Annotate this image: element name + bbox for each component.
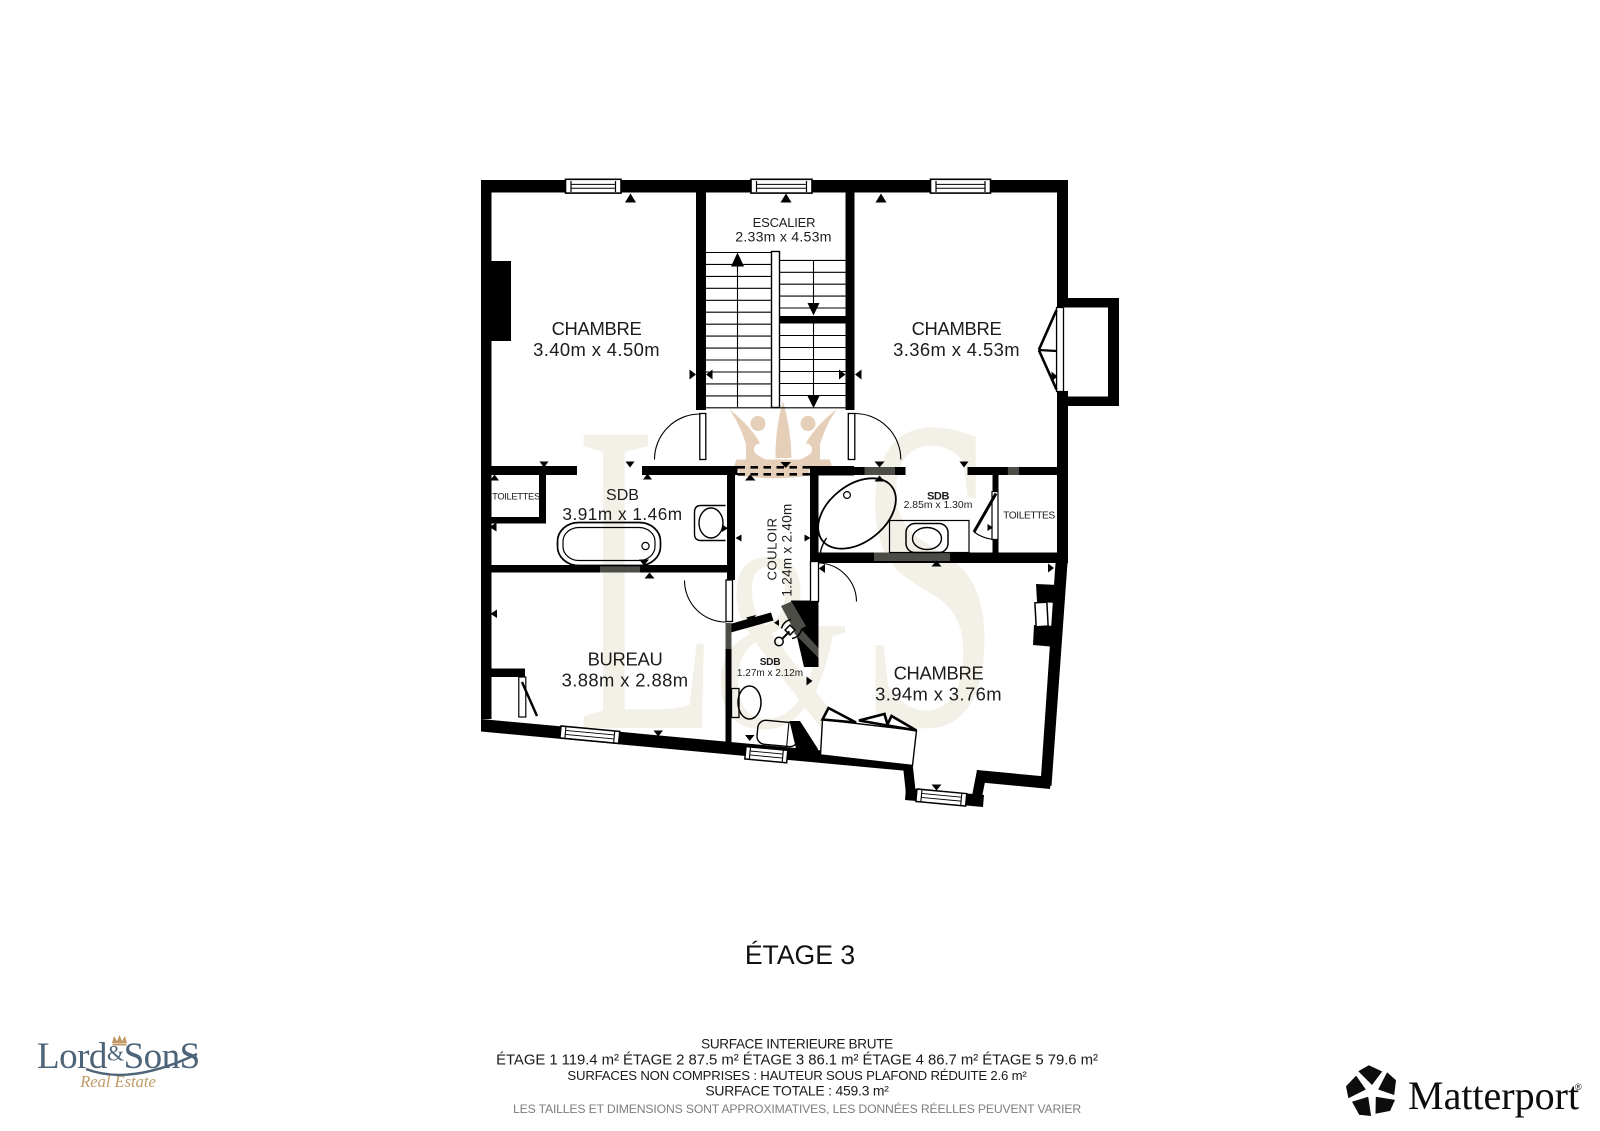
svg-text:2.85m x 1.30m: 2.85m x 1.30m [904,500,973,511]
svg-text:ÉTAGE 3: ÉTAGE 3 [745,940,855,970]
svg-text:Matterport: Matterport [1408,1073,1579,1118]
svg-text:SURFACE INTERIEURE BRUTE: SURFACE INTERIEURE BRUTE [701,1037,893,1052]
svg-text:CHAMBRE: CHAMBRE [912,318,1002,339]
svg-text:3.40m x 4.50m: 3.40m x 4.50m [533,339,660,360]
svg-text:ESCALIER: ESCALIER [753,215,816,230]
svg-text:2.33m x 4.53m: 2.33m x 4.53m [735,230,831,246]
svg-text:TOILETTES: TOILETTES [1003,511,1055,522]
svg-text:SURFACES NON COMPRISES : HAUT: SURFACES NON COMPRISES : HAUTEUR SOUS PL… [567,1068,1027,1083]
svg-text:SDB: SDB [606,487,639,504]
svg-text:LES TAILLES ET DIMENSIONS SONT: LES TAILLES ET DIMENSIONS SONT APPROXIMA… [513,1101,1081,1116]
svg-text:COULOIR: COULOIR [765,518,780,581]
svg-text:3.94m x 3.76m: 3.94m x 3.76m [875,684,1002,705]
svg-text:3.36m x 4.53m: 3.36m x 4.53m [893,339,1020,360]
svg-text:ÉTAGE 1 119.4 m² ÉTAGE 2 87: ÉTAGE 1 119.4 m² ÉTAGE 2 87.5 m² ÉTAGE 3… [496,1052,1098,1069]
svg-text:BUREAU: BUREAU [588,649,663,670]
svg-text:3.88m x 2.88m: 3.88m x 2.88m [562,670,689,691]
svg-text:®: ® [1575,1082,1582,1092]
svg-text:1.24m x 2.40m: 1.24m x 2.40m [780,503,795,596]
svg-text:3.91m x 1.46m: 3.91m x 1.46m [562,504,682,524]
svg-text:1.27m x 2.12m: 1.27m x 2.12m [737,668,803,679]
svg-text:CHAMBRE: CHAMBRE [894,663,984,684]
svg-text:SURFACE TOTALE : 459.3 m²: SURFACE TOTALE : 459.3 m² [705,1083,889,1099]
svg-text:CHAMBRE: CHAMBRE [552,318,642,339]
svg-text:TOILETTES: TOILETTES [492,491,540,502]
svg-text:Real Estate: Real Estate [79,1072,156,1091]
svg-text:SDB: SDB [760,657,781,668]
